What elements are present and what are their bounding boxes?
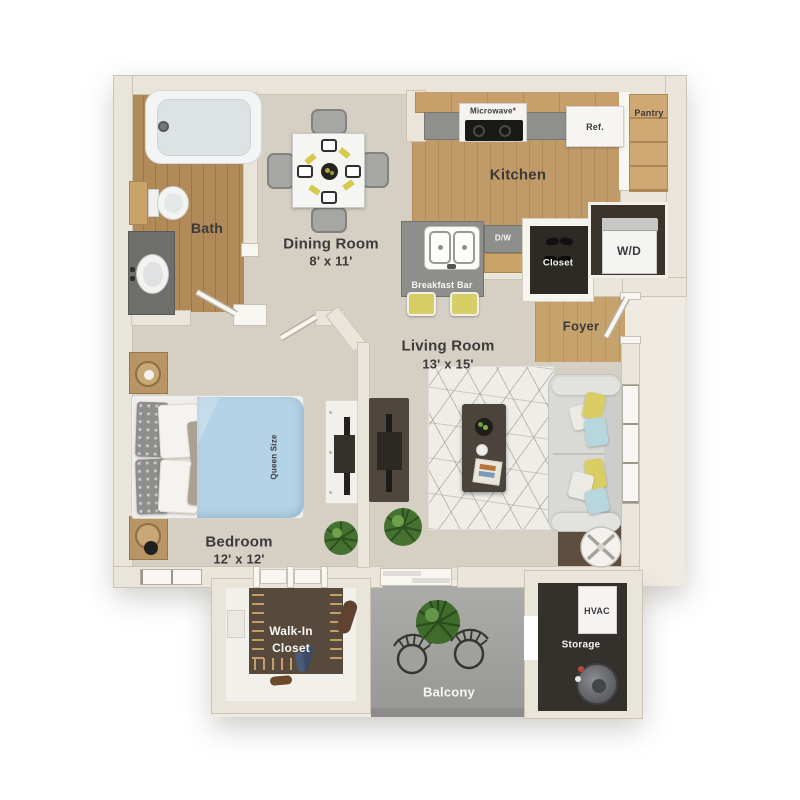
sofa-seam [553, 453, 605, 455]
sofa [548, 374, 622, 532]
sink-basin-right [453, 231, 475, 264]
dining-chair-left [267, 153, 295, 189]
bathtub-faucet-icon [158, 121, 169, 132]
heater-valve-white [575, 676, 581, 682]
door-post-t [233, 304, 267, 326]
microwave-label: Microwave* [470, 107, 516, 116]
slider-panel-2 [412, 578, 450, 583]
bar-stool-2 [450, 292, 479, 316]
dresser [325, 400, 358, 504]
balcony-label: Balcony [423, 685, 475, 700]
toilet-seat [164, 193, 183, 213]
coffee-table [462, 404, 506, 492]
french-door-post-mid [287, 566, 294, 588]
door-post-entry-top [620, 292, 641, 300]
vanity-faucet-icon-2 [130, 276, 135, 281]
floor-plan: Bath Dining Room 8' x 11' Kitchen Microw… [0, 0, 800, 800]
wall-right-upper [665, 75, 687, 297]
nightstand-top [129, 352, 168, 394]
dining-chair-bottom [311, 207, 347, 233]
sink-basin [143, 262, 163, 287]
foyer-label: Foyer [563, 319, 599, 334]
wd-label: W/D [617, 244, 641, 258]
decor-book [472, 458, 502, 486]
wall-left [113, 75, 133, 588]
storage-label: Storage [562, 640, 601, 651]
shoes-pair-1b [560, 237, 574, 246]
dining-dims: 8' x 11' [309, 254, 352, 269]
living-windows [622, 384, 639, 504]
bedroom-dims: 12' x 12' [213, 552, 264, 567]
living-label: Living Room [401, 338, 494, 355]
ref-label: Ref. [586, 122, 604, 132]
shoes-pair-1 [546, 237, 560, 246]
napkin-3 [308, 184, 320, 195]
bathtub [145, 90, 262, 164]
centerpiece [321, 163, 338, 180]
dining-table [292, 133, 365, 208]
vanity-faucet-icon [130, 267, 135, 272]
tv-bedroom-base [334, 435, 355, 473]
hvac-label: HVAC [584, 606, 610, 616]
french-door-post-left [253, 566, 260, 588]
balcony-edge [371, 708, 524, 717]
bath-label: Bath [191, 220, 223, 236]
door-post-bathwall [241, 243, 259, 257]
duvet [197, 397, 304, 518]
dining-chair-right [361, 152, 389, 188]
french-door-panel-right [294, 569, 321, 584]
napkin-1 [338, 147, 350, 159]
decor-vase [476, 444, 488, 456]
living-dims: 13' x 15' [422, 357, 473, 372]
napkin-2 [342, 179, 354, 190]
cooktop [465, 120, 523, 141]
bathtub-basin [157, 99, 251, 156]
napkin-4 [304, 153, 316, 165]
heater-valve-red [578, 666, 584, 672]
storage-door-opening [524, 616, 538, 660]
tv-living-base [377, 432, 402, 470]
french-door-post-right [321, 566, 328, 588]
media-console [369, 398, 409, 502]
dw-label: D/W [495, 234, 511, 243]
sink-faucet-icon [447, 264, 456, 269]
balcony-slider [380, 568, 452, 586]
bar-stool-1 [407, 292, 436, 316]
decor-bowl [475, 418, 493, 436]
bench [227, 610, 245, 638]
tray-top [135, 361, 161, 387]
closet-label: Closet [543, 258, 573, 269]
toilet-bowl [157, 186, 189, 220]
bar-cabinet [484, 253, 524, 273]
walkin-label-1: Walk-In [269, 624, 313, 638]
french-door-panel-left [260, 569, 287, 584]
hangers-bottom [254, 658, 298, 670]
plate-bottom [321, 191, 337, 204]
nightstand-bottom [129, 516, 168, 560]
kitchen-label: Kitchen [490, 167, 546, 184]
slider-panel-1 [383, 571, 421, 576]
plate-right [345, 165, 361, 178]
pillow-blue-1 [583, 417, 609, 448]
plate-top [321, 139, 337, 152]
bedroom-window [140, 569, 202, 585]
shoes-walkin [270, 675, 293, 686]
door-post-entry-bottom [620, 336, 641, 344]
sink-basin-left [429, 231, 451, 264]
lamp-icon [144, 541, 158, 555]
pantry-label: Pantry [634, 108, 663, 118]
toilet-cabinet [129, 181, 148, 225]
dining-chair-top [311, 109, 347, 135]
dining-label: Dining Room [283, 236, 379, 253]
plate-left [297, 165, 313, 178]
wd-alcove [588, 202, 668, 278]
breakfast-bar-label: Breakfast Bar [411, 280, 472, 290]
hangers-left [252, 594, 264, 666]
walkin-label-2: Closet [272, 641, 310, 655]
queen-size-label: Queen Size [270, 434, 279, 479]
bedroom-label: Bedroom [205, 534, 272, 551]
vanity-sink [136, 254, 169, 294]
sofa-arm-bottom [552, 513, 620, 531]
bar-sink [424, 226, 480, 270]
